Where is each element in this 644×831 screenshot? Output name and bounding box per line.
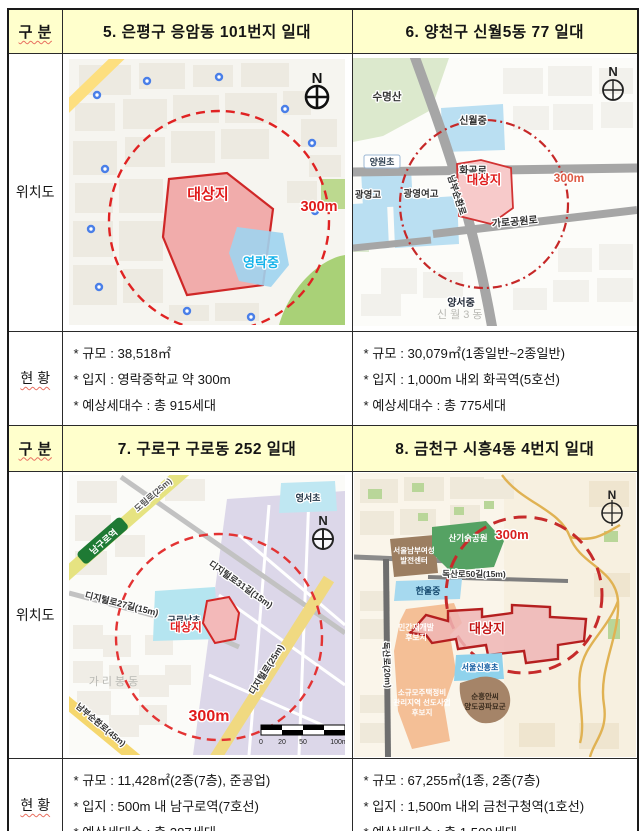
compass-n-label: N [312, 70, 323, 87]
hyeonhwang-label: 현 황 [20, 370, 50, 386]
center-label-2: 발전센터 [400, 555, 428, 565]
status-line: * 규모 : 30,079㎡(1종일반~2종일반) [364, 343, 634, 362]
hyeonhwang-label: 현 황 [20, 797, 50, 813]
status-line: * 예상세대수 : 총 1,509세대 [364, 822, 634, 831]
scale-50: 50 [299, 739, 307, 746]
target-site-label: 대상지 [187, 186, 228, 203]
school1-label: 한울중 [415, 585, 440, 596]
district-watermark: 신월3동 [437, 308, 485, 321]
zone1-label-1: 민간재개발 [398, 622, 435, 632]
target-site-label: 대상지 [170, 620, 202, 634]
district-summary-table: 구 분 5. 은평구 응암동 101번지 일대 6. 양천구 신월5동 77 일… [7, 8, 639, 831]
radius-label: 300m [495, 527, 528, 542]
map-cell-geumcheon: 서울남부여성 발전센터 산기슭공원 한울중 독산로50길(15m) 독산로(20… [352, 471, 638, 758]
radius-label: 300m [553, 171, 584, 185]
school5-label: 양서중 [447, 296, 475, 309]
status-line: * 예상세대수 : 총 915세대 [74, 395, 348, 414]
tomb-label-2: 양도공파묘군 [464, 701, 505, 711]
road1-label: 독산로50길(15m) [442, 569, 506, 579]
tomb-label-1: 순흥안씨 [471, 691, 499, 701]
school3-label: 광영여고 [403, 188, 438, 200]
row-label-wichido-2: 위치도 [8, 471, 62, 758]
map-cell-eunpyeong: 대상지 300m 영락중 N [62, 53, 352, 331]
radius-label: 300m [300, 199, 337, 215]
compass-n-label: N [607, 488, 616, 502]
status-line: * 예상세대수 : 총 775세대 [364, 395, 634, 414]
row-label-gubun-2: 구 분 [8, 425, 62, 471]
gubun-label: 구 분 [19, 24, 52, 41]
school-label: 영락중 [243, 255, 279, 270]
status-line: * 규모 : 67,255㎡(1종, 2종(7층) [364, 770, 634, 789]
compass-n-label: N [318, 513, 327, 528]
school2-label: 양원초 [369, 156, 395, 167]
section8-title: 8. 금천구 시흥4동 4번지 일대 [352, 425, 638, 471]
target-site-label: 대상지 [469, 621, 505, 636]
school4-label: 광영고 [355, 189, 381, 201]
mountain-label: 수명산 [372, 90, 401, 103]
status-line: * 규모 : 11,428㎡(2종(7층), 준공업) [74, 770, 348, 789]
section6-status: * 규모 : 30,079㎡(1종일반~2종일반) * 입지 : 1,000m … [352, 331, 638, 425]
map-eunpyeong-eumam: 대상지 300m 영락중 N [69, 59, 345, 325]
target-site-label: 대상지 [466, 172, 501, 187]
row-label-wichido-1: 위치도 [8, 53, 62, 331]
row-label-gubun-1: 구 분 [8, 9, 62, 53]
map-yangcheon-sinwol: 수명산 신월중 양원초 광영여고 광영고 화곡로 가로공원로 남부순환로 대상지… [353, 58, 637, 326]
status-line: * 규모 : 38,518㎡ [74, 343, 348, 362]
scale-100m: 100m [330, 739, 345, 746]
zone2-label-2: 관리지역 선도사업 [393, 697, 450, 707]
status-line: * 예상세대수 : 총 287세대 [74, 822, 348, 831]
school1-label: 신월중 [459, 114, 487, 127]
school2-label: 서울신흥초 [461, 662, 498, 672]
section8-status: * 규모 : 67,255㎡(1종, 2종(7층) * 입지 : 1,500m … [352, 758, 638, 831]
status-line: * 입지 : 500m 내 남구로역(7호선) [74, 796, 348, 815]
row-label-hyeonhwang-1: 현 황 [8, 331, 62, 425]
district-watermark: 가리봉동 [89, 675, 141, 688]
status-line: * 입지 : 1,500m 내외 금천구청역(1호선) [364, 796, 634, 815]
row-label-hyeonhwang-2: 현 황 [8, 758, 62, 831]
section6-title: 6. 양천구 신월5동 77 일대 [352, 9, 638, 53]
status-line: * 입지 : 1,000m 내외 화곡역(5호선) [364, 369, 634, 388]
scale-20: 20 [278, 739, 286, 746]
map-cell-guro: 남구로역 도림로(25m) 디지털로31길(15m) 디지털로27길(15m) … [62, 471, 352, 758]
section5-title: 5. 은평구 응암동 101번지 일대 [62, 9, 352, 53]
section5-status: * 규모 : 38,518㎡ * 입지 : 영락중학교 약 300m * 예상세… [62, 331, 352, 425]
zone1-label-2: 후보지 [405, 632, 427, 642]
compass-n-label: N [608, 64, 617, 79]
zone2-label-3: 후보지 [411, 707, 432, 717]
zone2-label-1: 소규모주택정비 [398, 687, 446, 697]
gubun-label: 구 분 [19, 441, 52, 458]
center-label-1: 서울남부여성 [393, 545, 434, 555]
park-label: 산기슭공원 [448, 533, 487, 543]
map-guro-gurodong: 남구로역 도림로(25m) 디지털로31길(15m) 디지털로27길(15m) … [69, 475, 345, 755]
school2-label: 영서초 [296, 492, 322, 503]
scale-0: 0 [259, 739, 263, 746]
map-geumcheon-siheung: 서울남부여성 발전센터 산기슭공원 한울중 독산로50길(15m) 독산로(20… [354, 473, 636, 757]
section7-title: 7. 구로구 구로동 252 일대 [62, 425, 352, 471]
status-line: * 입지 : 영락중학교 약 300m [74, 369, 348, 388]
document-page: 구 분 5. 은평구 응암동 101번지 일대 6. 양천구 신월5동 77 일… [0, 0, 644, 831]
radius-label: 300m [189, 708, 230, 725]
map-cell-yangcheon: 수명산 신월중 양원초 광영여고 광영고 화곡로 가로공원로 남부순환로 대상지… [352, 53, 638, 331]
section7-status: * 규모 : 11,428㎡(2종(7층), 준공업) * 입지 : 500m … [62, 758, 352, 831]
